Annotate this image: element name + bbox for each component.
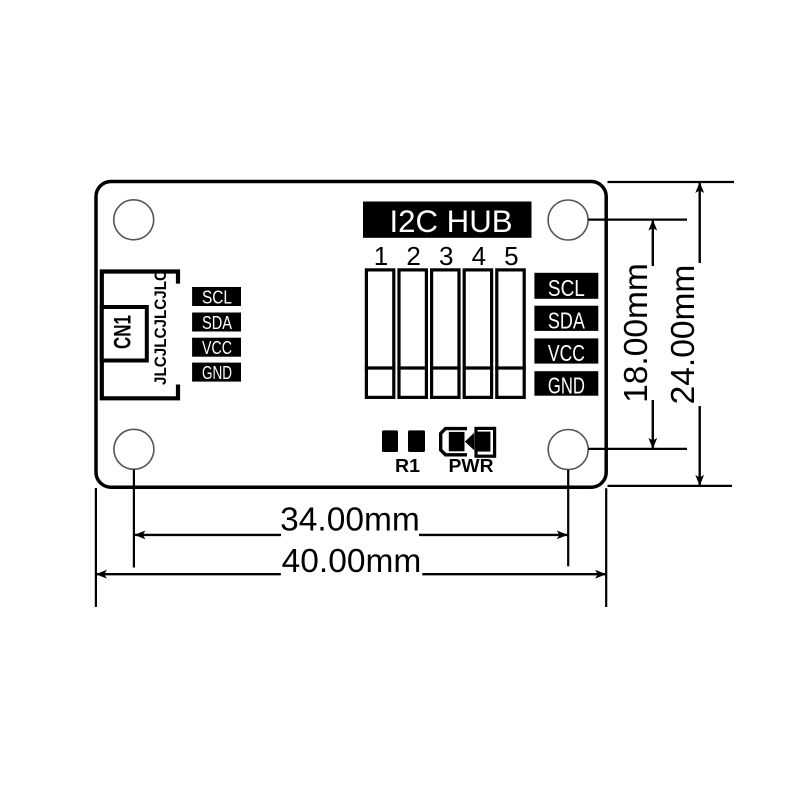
svg-text:SDA: SDA — [548, 307, 586, 333]
svg-text:40.00mm: 40.00mm — [282, 543, 422, 580]
svg-text:5: 5 — [504, 241, 518, 271]
svg-text:24.00mm: 24.00mm — [665, 265, 702, 405]
svg-text:VCC: VCC — [202, 338, 232, 358]
svg-text:GND: GND — [548, 373, 585, 399]
svg-text:18.00mm: 18.00mm — [618, 263, 655, 403]
svg-text:CN1: CN1 — [110, 315, 137, 349]
svg-text:JLCJLCJLCJLC: JLCJLCJLCJLC — [151, 270, 170, 385]
svg-text:SCL: SCL — [202, 287, 232, 307]
svg-text:3: 3 — [439, 241, 453, 271]
svg-text:2: 2 — [406, 241, 420, 271]
svg-text:R1: R1 — [395, 456, 420, 476]
svg-text:GND: GND — [202, 363, 232, 383]
svg-text:SCL: SCL — [548, 275, 585, 301]
svg-text:1: 1 — [374, 241, 388, 271]
svg-text:I2C HUB: I2C HUB — [390, 203, 513, 239]
svg-text:4: 4 — [472, 241, 486, 271]
svg-text:PWR: PWR — [449, 456, 494, 476]
svg-text:SDA: SDA — [202, 313, 232, 333]
svg-text:34.00mm: 34.00mm — [280, 501, 420, 538]
svg-text:VCC: VCC — [548, 340, 585, 366]
